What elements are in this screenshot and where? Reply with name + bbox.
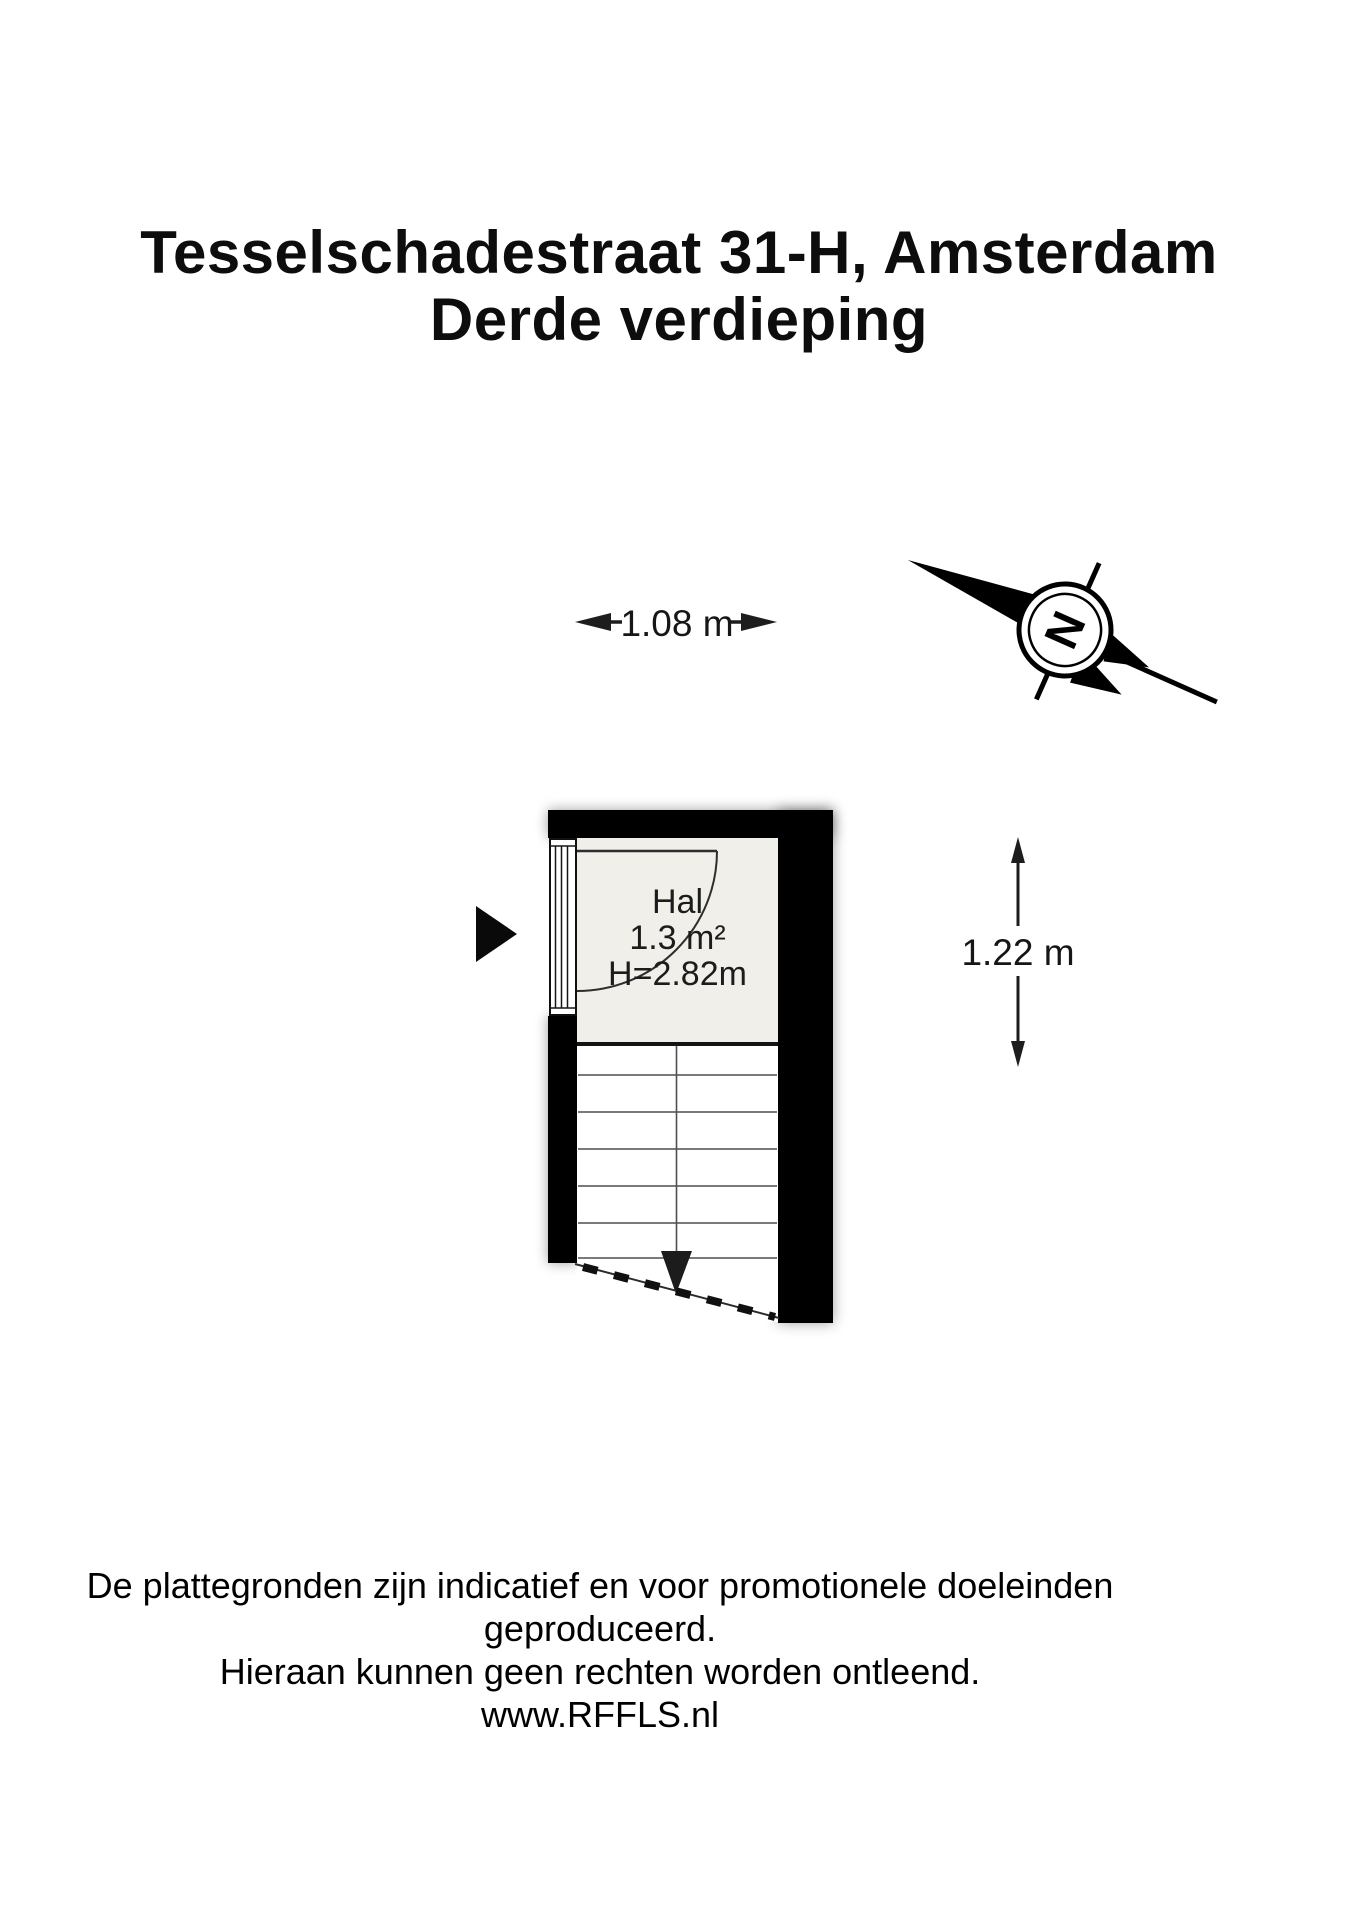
disclaimer-line2: Hieraan kunnen geen rechten worden ontle… bbox=[0, 1650, 1200, 1693]
floorplan-page: { "title": { "line1": "Tesselschadestraa… bbox=[0, 0, 1358, 1920]
stairwell bbox=[577, 1046, 778, 1322]
page-title-line1: Tesselschadestraat 31-H, Amsterdam bbox=[0, 219, 1358, 286]
wall-left bbox=[548, 1016, 577, 1263]
room-label: Hal 1.3 m² H=2.82m bbox=[577, 884, 778, 992]
disclaimer: De plattegronden zijn indicatief en voor… bbox=[0, 1564, 1200, 1736]
window-icon bbox=[549, 838, 577, 1016]
disclaimer-line3: www.RFFLS.nl bbox=[0, 1693, 1200, 1736]
wall-right bbox=[778, 810, 833, 1323]
room-name-label: Hal bbox=[577, 884, 778, 920]
page-title: Tesselschadestraat 31-H, Amsterdam Derde… bbox=[0, 219, 1358, 353]
room-height-label: H=2.82m bbox=[577, 956, 778, 992]
disclaimer-line1: De plattegronden zijn indicatief en voor… bbox=[0, 1564, 1200, 1650]
page-title-line2: Derde verdieping bbox=[0, 286, 1358, 353]
compass-north-letter: N bbox=[1033, 604, 1095, 657]
width-dimension-label: 1.08 m bbox=[577, 602, 777, 646]
room-area-label: 1.3 m² bbox=[577, 920, 778, 956]
north-compass-icon: N bbox=[877, 492, 1249, 767]
entrance-arrow-icon bbox=[476, 906, 517, 962]
depth-dimension-label: 1.22 m bbox=[938, 931, 1098, 975]
